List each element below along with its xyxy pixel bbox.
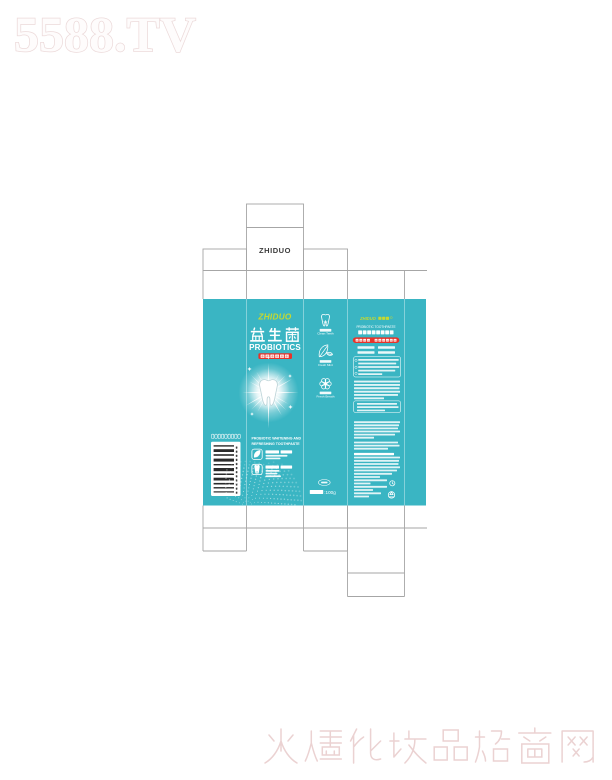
svg-text:Clean Teeth: Clean Teeth	[317, 332, 334, 336]
svg-text:PROBIOTIC TOOTHPASTE: PROBIOTIC TOOTHPASTE	[356, 325, 395, 329]
svg-text:ZHIDUO: ZHIDUO	[259, 246, 291, 255]
svg-text:5588.TV: 5588.TV	[14, 6, 196, 62]
svg-text:ZHIDUO: ZHIDUO	[257, 312, 292, 321]
svg-text:PROBIOTIC WHITENING AND: PROBIOTIC WHITENING AND	[252, 437, 302, 441]
svg-text:Fresh Breath: Fresh Breath	[317, 394, 335, 398]
svg-text:ZHIDUO: ZHIDUO	[359, 316, 377, 321]
svg-text:REFRESHING TOOTHPASTE: REFRESHING TOOTHPASTE	[252, 442, 301, 446]
svg-text:Fresh Mint: Fresh Mint	[318, 363, 333, 367]
svg-text::100g: :100g	[324, 490, 336, 495]
svg-text:PROBIOTICS: PROBIOTICS	[249, 343, 301, 352]
